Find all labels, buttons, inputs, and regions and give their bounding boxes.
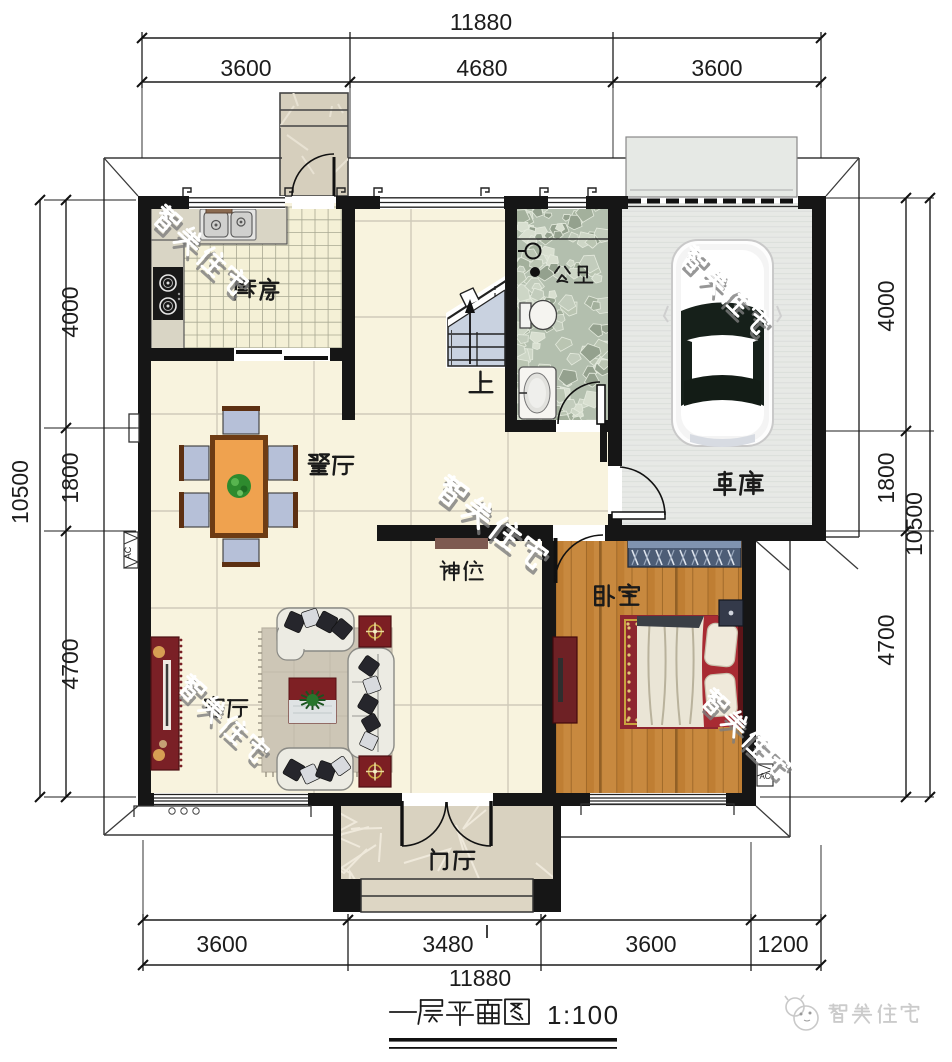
svg-text:4000: 4000 xyxy=(57,286,83,337)
svg-text:1200: 1200 xyxy=(757,931,808,957)
svg-text:1:100: 1:100 xyxy=(547,1000,620,1030)
svg-text:AC: AC xyxy=(123,546,133,559)
svg-text:3600: 3600 xyxy=(691,55,742,81)
svg-text:3600: 3600 xyxy=(220,55,271,81)
svg-text:11880: 11880 xyxy=(449,965,511,991)
svg-text:10500: 10500 xyxy=(7,460,33,524)
svg-text:4000: 4000 xyxy=(873,280,899,331)
svg-text:AC: AC xyxy=(759,772,770,781)
svg-text:1800: 1800 xyxy=(57,452,83,503)
svg-text:4700: 4700 xyxy=(57,638,83,689)
svg-text:11880: 11880 xyxy=(450,9,512,35)
svg-text:3600: 3600 xyxy=(196,931,247,957)
svg-text:4680: 4680 xyxy=(456,55,507,81)
svg-text:10500: 10500 xyxy=(901,492,927,556)
svg-text:3480: 3480 xyxy=(422,931,473,957)
svg-text:1800: 1800 xyxy=(873,452,899,503)
svg-text:4700: 4700 xyxy=(873,614,899,665)
svg-text:3600: 3600 xyxy=(625,931,676,957)
